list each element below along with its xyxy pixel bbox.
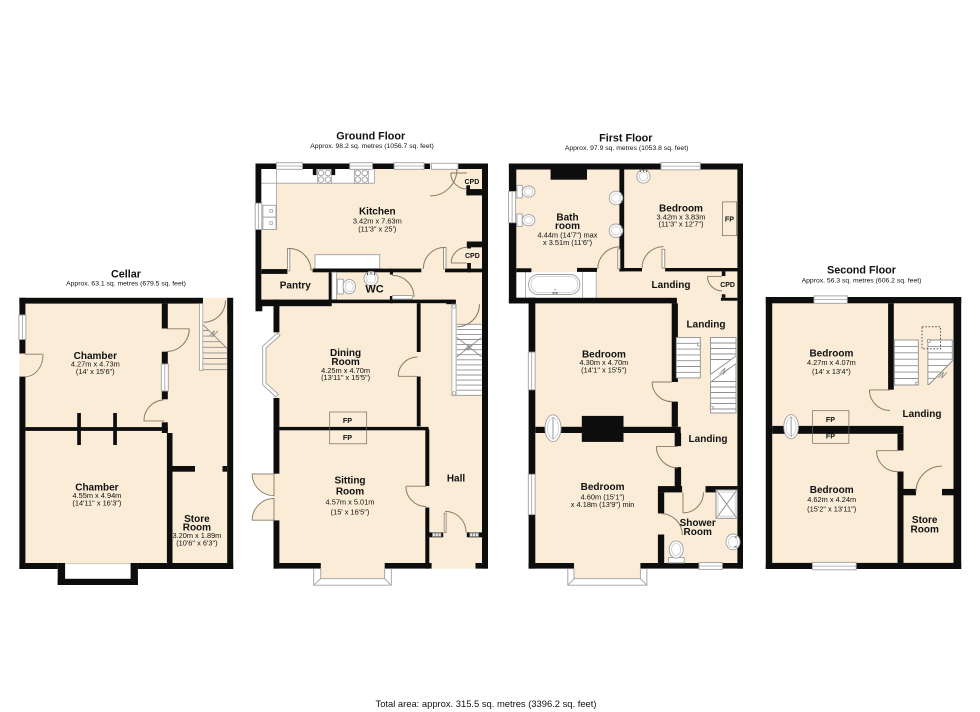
svg-text:Landing: Landing <box>687 319 726 330</box>
svg-text:Landing: Landing <box>903 409 942 420</box>
svg-text:(15' x 16'5"): (15' x 16'5") <box>331 508 370 517</box>
svg-text:(11'3" x 25'): (11'3" x 25') <box>358 224 396 233</box>
svg-text:(14' x 15'6"): (14' x 15'6") <box>76 367 115 376</box>
svg-text:(11'3" x 12'7"): (11'3" x 12'7") <box>659 220 704 229</box>
svg-text:(15'2" x 13'11"): (15'2" x 13'11") <box>807 505 856 514</box>
svg-text:FP: FP <box>826 415 835 424</box>
svg-text:Sitting: Sitting <box>334 476 365 487</box>
svg-text:FP: FP <box>343 416 352 425</box>
svg-text:Landing: Landing <box>689 434 728 445</box>
svg-text:FP: FP <box>826 431 835 440</box>
svg-text:Room: Room <box>684 527 712 538</box>
svg-text:Hall: Hall <box>447 473 466 484</box>
svg-text:Room: Room <box>911 525 939 536</box>
svg-text:FP: FP <box>725 214 734 223</box>
svg-text:4.57m x 5.01m: 4.57m x 5.01m <box>326 497 375 506</box>
svg-text:Pantry: Pantry <box>280 281 312 292</box>
svg-text:First Floor: First Floor <box>599 133 653 145</box>
svg-text:Second Floor: Second Floor <box>827 265 897 277</box>
svg-text:Approx. 56.3 sq. metres (606.2: Approx. 56.3 sq. metres (606.2 sq. feet) <box>802 277 922 284</box>
svg-text:Total area: approx. 315.5 sq.: Total area: approx. 315.5 sq. metres (33… <box>376 698 597 709</box>
svg-text:CPD: CPD <box>465 253 480 260</box>
svg-text:Ground Floor: Ground Floor <box>336 130 406 142</box>
svg-text:Landing: Landing <box>652 280 691 291</box>
svg-text:4.62m x 4.24m: 4.62m x 4.24m <box>807 495 856 504</box>
svg-text:Approx. 97.9 sq. metres (1053.: Approx. 97.9 sq. metres (1053.8 sq. feet… <box>565 145 689 152</box>
svg-text:4.27m x 4.07m: 4.27m x 4.07m <box>807 358 856 367</box>
svg-text:Room: Room <box>336 487 364 498</box>
svg-text:x 4.18m (13'9") min: x 4.18m (13'9") min <box>571 500 635 509</box>
svg-text:x 3.51m (11'6"): x 3.51m (11'6") <box>543 238 592 247</box>
svg-text:Approx. 63.1 sq. metres (679.5: Approx. 63.1 sq. metres (679.5 sq. feet) <box>66 280 186 287</box>
svg-text:(14'1" x 15'5"): (14'1" x 15'5") <box>581 365 626 374</box>
svg-text:Approx. 98.2 sq. metres (1056.: Approx. 98.2 sq. metres (1056.7 sq. feet… <box>310 143 434 150</box>
svg-text:(14' x 13'4"): (14' x 13'4") <box>812 367 851 376</box>
svg-text:(14'11" x 16'3"): (14'11" x 16'3") <box>72 498 121 507</box>
svg-text:(10'6" x 6'3"): (10'6" x 6'3") <box>176 538 217 547</box>
svg-text:CPD: CPD <box>465 179 480 186</box>
svg-text:FP: FP <box>343 433 352 442</box>
svg-text:(13'11" x 15'5"): (13'11" x 15'5") <box>321 373 370 382</box>
svg-text:WC: WC <box>365 283 383 295</box>
svg-text:CPD: CPD <box>720 282 735 289</box>
svg-text:Cellar: Cellar <box>111 268 142 280</box>
